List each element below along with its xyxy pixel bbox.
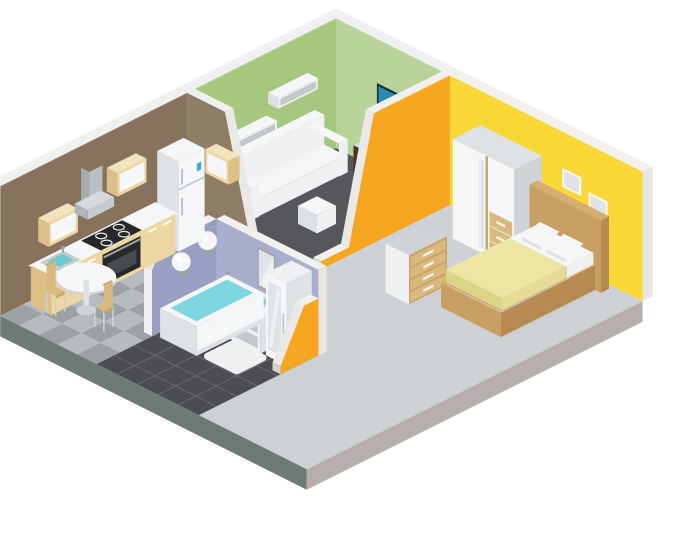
chair-back (47, 261, 56, 291)
apartment-floorplan-figure: Isometric cutaway illustration of a one-… (0, 0, 675, 540)
wardrobe-trim-strip (486, 156, 488, 257)
tub-faucet (225, 271, 230, 275)
lamp-globe-highlight (175, 255, 182, 262)
wardrobe-door-seam (485, 155, 486, 255)
headboard-side (601, 216, 609, 293)
apartment-isometric-illustration: Isometric cutaway illustration of a one-… (0, 0, 675, 540)
tall-cabinet-handle (282, 313, 284, 335)
wardrobe-mirror-sheen (480, 161, 481, 247)
fridge-handle-upper (181, 168, 183, 185)
table-base (76, 305, 96, 315)
bathroom-back-wall-end-cap (319, 266, 327, 355)
fridge-handle-lower (181, 198, 183, 216)
back-right-wall-end-cap (643, 167, 653, 302)
sofa-arm-back-front (339, 139, 348, 177)
lamp-globe (172, 252, 191, 271)
bathroom-left-wall-end-cap (144, 266, 152, 336)
